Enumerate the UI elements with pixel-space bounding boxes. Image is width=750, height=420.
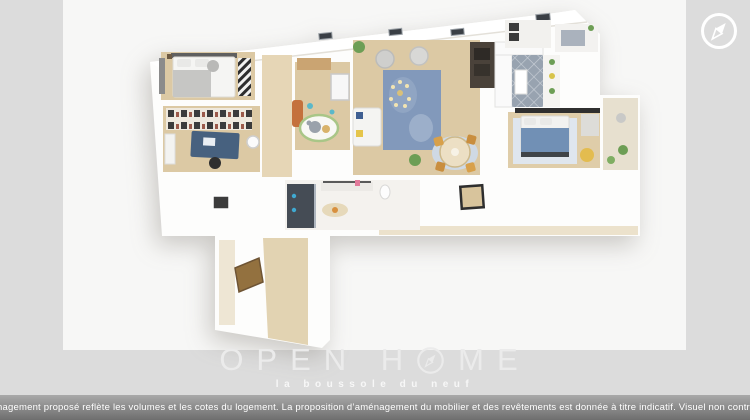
plant	[409, 154, 421, 166]
doormat	[213, 196, 229, 209]
room-bedroom2	[508, 108, 600, 168]
hallway	[262, 55, 292, 177]
zigzag-rug	[238, 58, 251, 96]
disclaimer-bar: L’aménagement proposé reflète les volume…	[0, 395, 750, 420]
disclaimer-text: L’aménagement proposé reflète les volume…	[0, 402, 750, 413]
armchair	[410, 47, 428, 65]
render-viewport[interactable]	[63, 0, 686, 350]
desk	[190, 131, 239, 159]
room-master-bedroom	[159, 52, 255, 100]
elephant-rug	[300, 115, 338, 141]
desk-chair	[209, 157, 221, 169]
watermark: OPEN H ME la boussole du neuf	[0, 344, 750, 390]
crib	[331, 74, 349, 100]
bed	[173, 57, 235, 97]
vanity	[321, 182, 373, 191]
room-kids-bedroom	[292, 58, 350, 150]
brand-tagline: la boussole du neuf	[0, 379, 750, 390]
balcony	[603, 98, 638, 170]
shower	[287, 184, 315, 228]
compass-button[interactable]	[699, 11, 739, 51]
sofa	[353, 108, 381, 146]
island	[515, 70, 527, 94]
window-wall	[515, 108, 600, 113]
floor-lamp	[247, 136, 259, 148]
utility-closet	[470, 42, 495, 88]
lounge-chair	[580, 148, 594, 162]
skylight	[460, 185, 483, 208]
room-living	[353, 40, 480, 175]
kitchen-shelves	[543, 55, 560, 107]
dining-set	[432, 134, 478, 173]
plant	[353, 41, 365, 53]
floorplan-3d-render[interactable]	[63, 0, 686, 350]
bed	[521, 116, 569, 157]
room-bathroom	[285, 180, 420, 230]
compass-icon	[699, 11, 739, 51]
toilet	[380, 185, 390, 199]
apartment-viewer: OPEN H ME la boussole du neuf L’aménagem…	[0, 0, 750, 420]
room-office	[163, 106, 260, 172]
armchair	[376, 50, 394, 68]
